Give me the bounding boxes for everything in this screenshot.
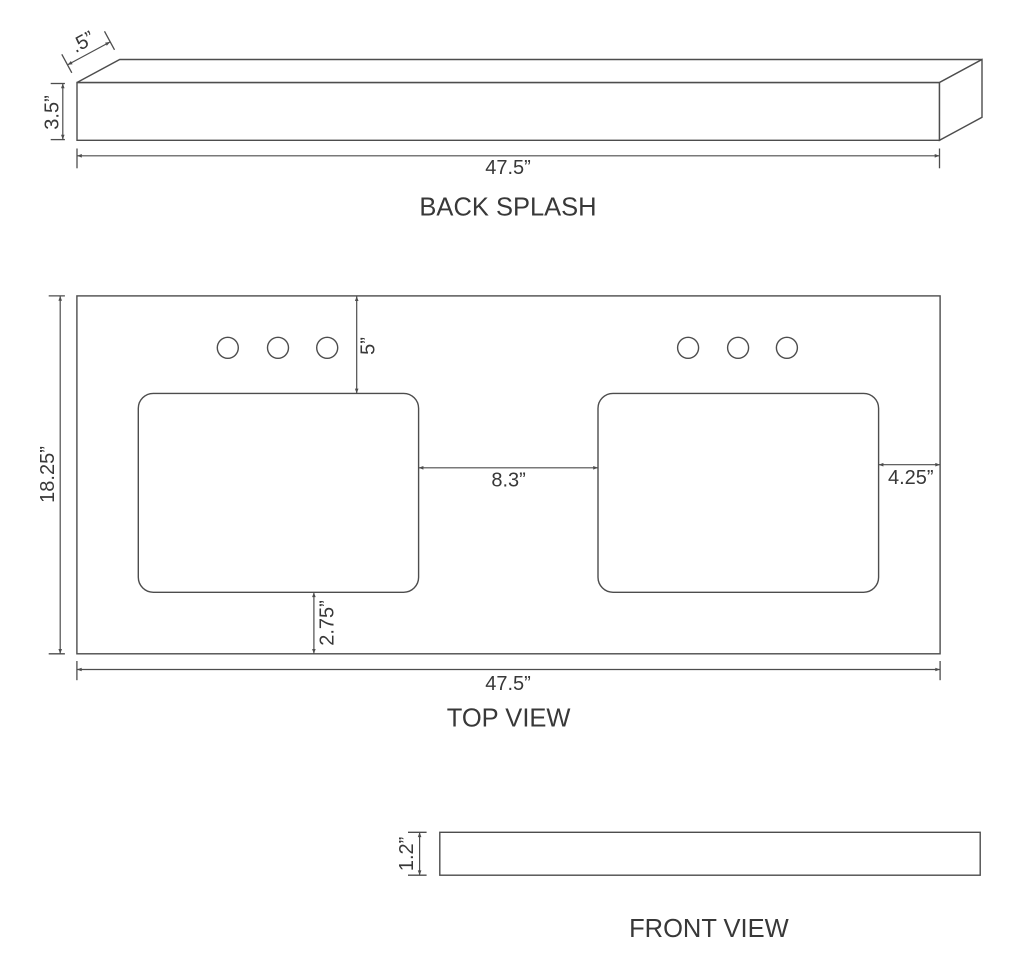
svg-text:47.5”: 47.5” <box>485 157 531 179</box>
svg-text:3.5”: 3.5” <box>42 95 64 129</box>
svg-text:BACK SPLASH: BACK SPLASH <box>419 193 596 221</box>
svg-text:18.25”: 18.25” <box>37 446 59 503</box>
svg-text:5”: 5” <box>358 337 380 355</box>
svg-text:2.75”: 2.75” <box>316 600 338 646</box>
svg-text:8.3”: 8.3” <box>491 469 525 491</box>
svg-text:TOP VIEW: TOP VIEW <box>447 705 571 733</box>
svg-text:4.25”: 4.25” <box>888 467 934 489</box>
svg-text:FRONT VIEW: FRONT VIEW <box>629 915 789 943</box>
svg-text:47.5”: 47.5” <box>485 673 531 695</box>
svg-text:1.2”: 1.2” <box>396 837 418 871</box>
